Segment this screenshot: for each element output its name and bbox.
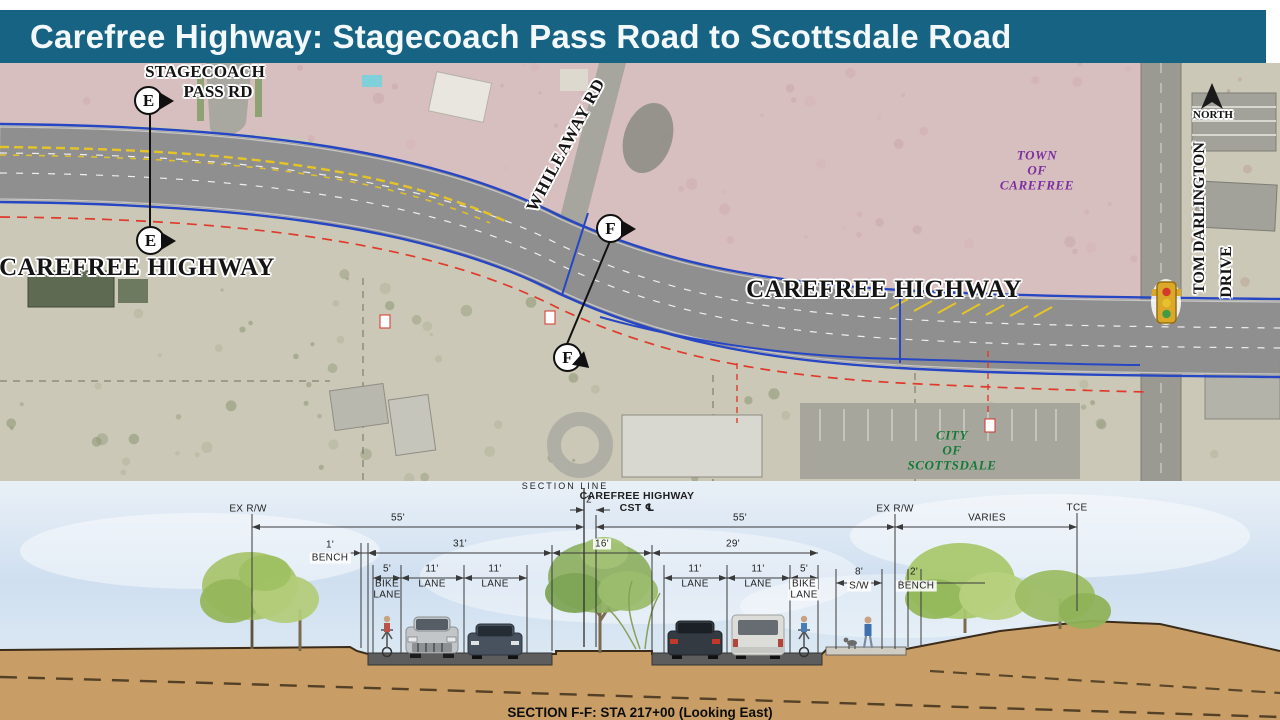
vegetation-dot bbox=[380, 283, 391, 294]
vegetation-dot bbox=[6, 418, 16, 428]
town-line: TOWN bbox=[1000, 148, 1074, 163]
vegetation-dot bbox=[781, 411, 790, 420]
vegetation-dot bbox=[591, 385, 600, 394]
carefree-highway-label-west: CAREFREE HIGHWAY bbox=[0, 254, 275, 282]
bike-right-width: 5' bbox=[800, 564, 808, 575]
marker-arrow-icon bbox=[159, 92, 174, 110]
traffic-signal-icon bbox=[1151, 279, 1181, 325]
vegetation-dot bbox=[569, 373, 579, 383]
page-title: Carefree Highway: Stagecoach Pass Road t… bbox=[0, 18, 1012, 56]
vegetation-dot bbox=[248, 321, 253, 326]
vegetation-dot bbox=[332, 300, 339, 307]
ex-rw-right-label: EX R/W bbox=[876, 504, 913, 515]
vegetation-dot bbox=[1079, 380, 1088, 389]
dim-29-label: 29' bbox=[726, 539, 740, 550]
tce-label: TCE bbox=[1067, 503, 1088, 514]
vegetation-dot bbox=[768, 388, 779, 399]
dim-55-right-label: 55' bbox=[733, 513, 747, 524]
city-line: OF bbox=[907, 443, 996, 458]
vegetation-dot bbox=[239, 327, 245, 333]
vegetation-dot bbox=[122, 457, 130, 465]
cst-centerline-label: CST ℄ bbox=[620, 502, 655, 514]
vegetation-dot bbox=[494, 420, 503, 429]
dim-1ft-label: 1' bbox=[326, 540, 334, 551]
bike-left-word2: LANE bbox=[373, 590, 400, 601]
vegetation-dot bbox=[95, 383, 102, 390]
marker-letter: E bbox=[143, 91, 154, 111]
signal-green bbox=[1162, 310, 1170, 318]
aerial-map: STAGECOACH PASS RD CAREFREE HIGHWAY CARE… bbox=[0, 63, 1280, 481]
section-marker-e1: E bbox=[134, 86, 163, 115]
vegetation-dot bbox=[215, 344, 223, 352]
vegetation-dot bbox=[744, 396, 752, 404]
lane-l1-width: 11' bbox=[425, 564, 438, 575]
vegetation-dot bbox=[1090, 400, 1095, 405]
sidewalk-word: S/W bbox=[847, 581, 871, 592]
bike-left-word1: BIKE bbox=[375, 579, 399, 590]
carefree-highway-section-label: CAREFREE HIGHWAY bbox=[580, 490, 695, 502]
vegetation-dot bbox=[129, 434, 140, 445]
title-bar: Carefree Highway: Stagecoach Pass Road t… bbox=[0, 10, 1266, 63]
vegetation-dot bbox=[1238, 77, 1242, 81]
lane-l2-width: 11' bbox=[488, 564, 501, 575]
drive-label: DRIVE bbox=[1218, 246, 1236, 298]
vegetation-dot bbox=[1096, 418, 1106, 428]
vegetation-dot bbox=[1240, 277, 1250, 287]
vegetation-dot bbox=[319, 465, 324, 470]
lane-l1-word: LANE bbox=[418, 579, 445, 590]
signal-yellow bbox=[1162, 299, 1170, 307]
vegetation-dot bbox=[337, 336, 345, 344]
vegetation-dot bbox=[435, 355, 443, 363]
lane-l2-word: LANE bbox=[481, 579, 508, 590]
vegetation-dot bbox=[201, 442, 212, 453]
vegetation-dot bbox=[134, 309, 144, 319]
bench-right-word: BENCH bbox=[896, 581, 937, 592]
town-line: OF bbox=[1000, 163, 1074, 178]
vegetation-dot bbox=[226, 400, 237, 411]
bike-right-word1: BIKE bbox=[790, 579, 818, 590]
vegetation-dot bbox=[412, 315, 422, 325]
lane-r1-width: 11' bbox=[688, 564, 701, 575]
bench-right-width: 2' bbox=[910, 567, 918, 578]
vegetation-dot bbox=[92, 437, 102, 447]
cross-section-art bbox=[0, 481, 1280, 720]
city-line: CITY bbox=[907, 428, 996, 443]
suv-rear-right-roadway bbox=[732, 615, 784, 659]
vegetation-dot bbox=[176, 414, 182, 420]
lane-r2-width: 11' bbox=[751, 564, 764, 575]
section-caption: SECTION F-F: STA 217+00 (Looking East) bbox=[0, 705, 1280, 720]
varies-label: VARIES bbox=[968, 513, 1006, 524]
vegetation-dot bbox=[423, 321, 433, 331]
suv-front-left-roadway bbox=[406, 617, 458, 658]
dim-31-label: 31' bbox=[453, 539, 467, 550]
dim-16-label: 16' bbox=[593, 539, 611, 550]
building bbox=[388, 394, 435, 455]
vegetation-dot bbox=[195, 452, 200, 457]
vegetation-dot bbox=[20, 402, 24, 406]
sedan-front-left-roadway bbox=[468, 624, 522, 659]
vegetation-dot bbox=[221, 288, 224, 291]
vegetation-dot bbox=[572, 459, 575, 462]
dim-55-left-label: 55' bbox=[391, 513, 405, 524]
vegetation-dot bbox=[484, 446, 495, 457]
vegetation-dot bbox=[310, 342, 314, 346]
stagecoach-pass-label-1: STAGECOACH bbox=[145, 63, 265, 82]
vegetation-dot bbox=[526, 297, 537, 308]
tom-darlington-label: TOM DARLINGTON bbox=[1191, 142, 1209, 294]
lane-r2-word: LANE bbox=[744, 579, 771, 590]
building bbox=[118, 279, 148, 303]
vegetation-dot bbox=[1081, 404, 1086, 409]
vegetation-dot bbox=[328, 439, 338, 449]
sedan-rear-right-roadway bbox=[668, 621, 722, 659]
vegetation-dot bbox=[306, 382, 311, 387]
vegetation-dot bbox=[346, 277, 349, 280]
vegetation-dot bbox=[120, 469, 126, 475]
section-marker-e2: E bbox=[136, 226, 165, 255]
north-label: NORTH bbox=[1193, 109, 1233, 121]
bench-left-label: BENCH bbox=[310, 553, 351, 564]
lane-r1-word: LANE bbox=[681, 579, 708, 590]
signal-red bbox=[1162, 288, 1170, 296]
city-line: SCOTTSDALE bbox=[907, 458, 996, 473]
vegetation-dot bbox=[328, 363, 338, 373]
section-marker-f2: F bbox=[553, 343, 582, 372]
vegetation-dot bbox=[461, 305, 473, 317]
callout-box bbox=[545, 311, 555, 324]
vegetation-dot bbox=[360, 449, 372, 461]
marker-letter: E bbox=[145, 231, 156, 251]
vegetation-dot bbox=[1227, 89, 1231, 93]
building bbox=[622, 415, 762, 477]
vegetation-dot bbox=[317, 414, 322, 419]
sidewalk bbox=[826, 647, 906, 655]
cross-section: SECTION LINE EX R/W 2' CAREFREE HIGHWAY … bbox=[0, 481, 1280, 720]
pool bbox=[362, 75, 382, 87]
vegetation-dot bbox=[385, 301, 394, 310]
vegetation-dot bbox=[1210, 450, 1218, 458]
vegetation-dot bbox=[1243, 165, 1252, 174]
bike-right-word2: LANE bbox=[788, 590, 819, 601]
sidewalk-width: 8' bbox=[855, 567, 863, 578]
vegetation-dot bbox=[293, 354, 299, 360]
callout-box bbox=[380, 315, 390, 328]
stagecoach-pass-label-2: PASS RD bbox=[183, 82, 252, 102]
marker-arrow-icon bbox=[621, 220, 636, 238]
marker-arrow-icon bbox=[161, 232, 176, 250]
town-of-carefree-label: TOWN OF CAREFREE bbox=[1000, 148, 1074, 193]
exhibit-slide: Carefree Highway: Stagecoach Pass Road t… bbox=[0, 0, 1280, 720]
vegetation-dot bbox=[175, 451, 180, 456]
building bbox=[329, 383, 388, 430]
marker-letter: F bbox=[605, 219, 615, 239]
vegetation-dot bbox=[158, 353, 162, 357]
town-line: CAREFREE bbox=[1000, 178, 1074, 193]
carefree-highway-label-east: CAREFREE HIGHWAY bbox=[746, 276, 1022, 304]
bike-left-width: 5' bbox=[383, 564, 391, 575]
vegetation-dot bbox=[430, 333, 434, 337]
cyclist-left-bike-lane bbox=[381, 616, 393, 657]
ex-rw-left-label: EX R/W bbox=[229, 504, 266, 515]
vegetation-dot bbox=[304, 401, 309, 406]
section-marker-f1: F bbox=[596, 214, 625, 243]
city-of-scottsdale-label: CITY OF SCOTTSDALE bbox=[907, 428, 996, 473]
pavement-left bbox=[368, 653, 552, 665]
